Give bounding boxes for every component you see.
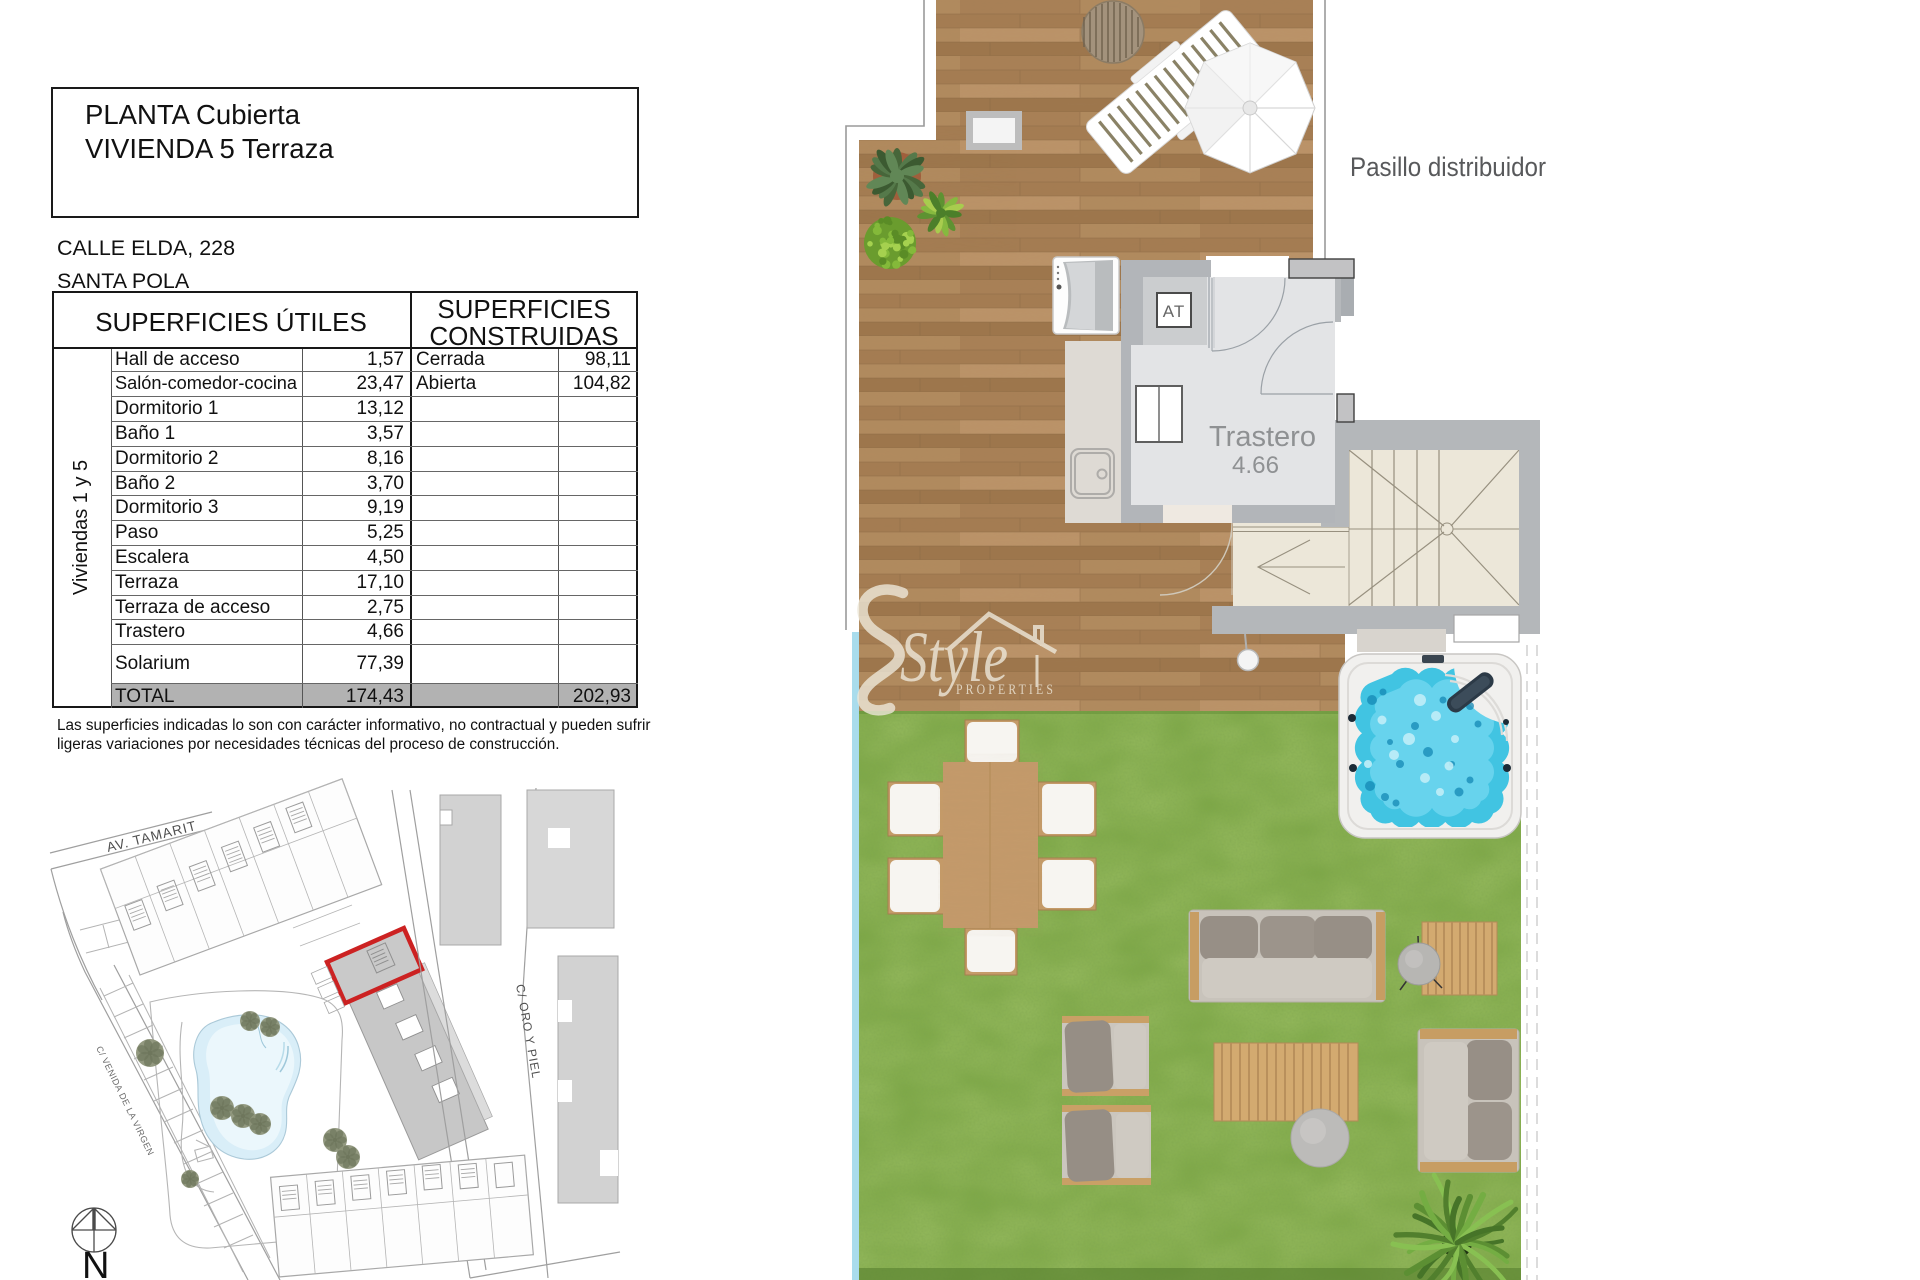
svg-text:AT: AT [1163,302,1185,321]
svg-text:PROPERTIES: PROPERTIES [956,682,1056,698]
svg-text:4.66: 4.66 [1232,452,1279,479]
svg-text:N: N [82,1245,109,1280]
svg-text:Trastero: Trastero [1209,421,1316,453]
svg-text:Pasillo distribuidor: Pasillo distribuidor [1350,152,1546,182]
svg-text:C/ ORO Y PIEL: C/ ORO Y PIEL [513,983,543,1080]
